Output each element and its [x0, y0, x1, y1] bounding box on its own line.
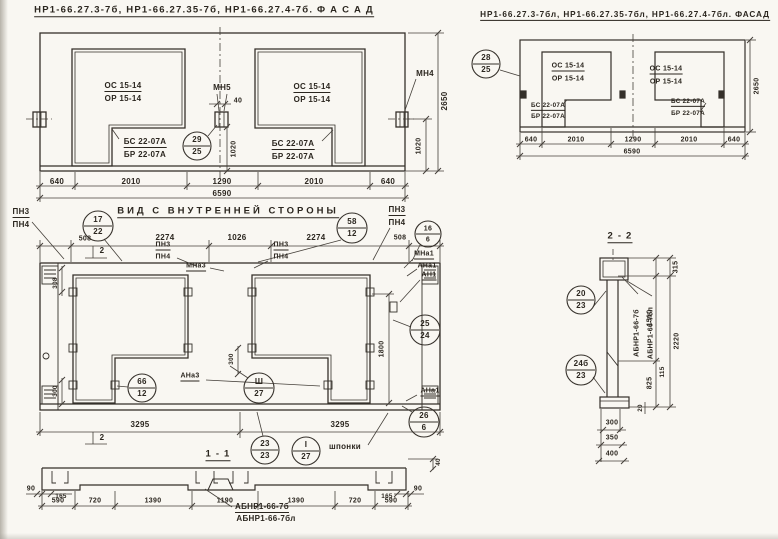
facade-right-title: НР1-66.27.3-7бл, НР1-66.27.35-7бл, НР1-6… [480, 11, 770, 21]
facade-right-block-mark: БС 22-07А [671, 99, 705, 107]
section-1-1-panel-mark: АБНР1-66-7бл [236, 515, 295, 523]
facade-right-dim: 2010 [681, 137, 698, 144]
section-1-1-dim: 40 [436, 458, 442, 466]
facade-left-dim: 1020 [416, 138, 423, 155]
section-1-1-dim: 1390 [145, 498, 162, 505]
inner-view-node-number: 16 [424, 226, 432, 233]
facade-right-dim: 2010 [568, 137, 585, 144]
inner-view-sheet-number: 23 [260, 452, 270, 460]
section-2-2-sheet-number: 23 [576, 372, 586, 380]
facade-right-dim: 640 [525, 137, 538, 144]
inner-view-node-number: 58 [347, 218, 357, 226]
labels-layer: НР1-66.27.3-7б, НР1-66.27.35-7б, НР1-66.… [0, 0, 778, 539]
inner-view-loop-mark: ПН3 [156, 242, 171, 251]
facade-left-window-mark: ОР 15-14 [105, 95, 142, 103]
inner-view-dim: 3295 [131, 421, 150, 429]
section-2-2-node-number: 24б [574, 360, 589, 368]
inner-view-node-number: 25 [420, 320, 430, 328]
facade-left-window-mark: ОР 15-14 [294, 96, 331, 104]
inner-view-note: шпонки [329, 443, 361, 451]
inner-view-section-mark: 2 [100, 434, 105, 442]
section-1-1-dim: 1190 [217, 498, 233, 505]
inner-view-sheet-number: 12 [137, 390, 147, 398]
section-1-1-dim: 720 [349, 498, 362, 505]
blueprint-sheet: НР1-66.27.3-7б, НР1-66.27.35-7б, НР1-66.… [0, 0, 778, 539]
inner-view-sheet-number: 22 [93, 228, 103, 236]
section-1-1-dim: 590 [385, 498, 398, 505]
facade-left-dim: 2650 [441, 92, 449, 111]
inner-view-title: ВИД С ВНУТРЕННЕЙ СТОРОНЫ [117, 206, 339, 218]
facade-left-dim: 2010 [305, 178, 324, 186]
inner-view-loop-mark: ПН3 [389, 206, 406, 216]
facade-right-block-mark: БС 22-07А [531, 103, 565, 111]
inner-view-loop-mark: ПН4 [389, 219, 406, 227]
facade-right-window-mark: ОС 15-14 [552, 63, 585, 72]
inner-view-node-number: I [305, 441, 308, 449]
section-1-1-dim: 590 [52, 498, 65, 505]
inner-view-dim: 3295 [331, 421, 350, 429]
inner-view-dim: 2274 [307, 234, 326, 242]
section-1-1-panel-mark: АБНР1-66-7б [235, 503, 289, 513]
facade-left-anchor-mark: МН5 [213, 84, 231, 92]
inner-view-anchor-mark: АНа3 [180, 373, 199, 382]
section-2-2-dim: 315 [673, 261, 680, 274]
inner-view-anchor-mark: АНа1 [420, 388, 439, 397]
inner-view-loop-mark: ПН4 [274, 254, 289, 261]
inner-view-dim: 300 [229, 353, 235, 364]
inner-view-anchor-mark: МНа3 [186, 263, 206, 272]
facade-left-dim: 1020 [231, 141, 238, 158]
facade-right-window-mark: ОР 15-14 [650, 79, 682, 86]
inner-view-node-number: Ш [255, 378, 263, 386]
inner-view-anchor-mark: АН1 [422, 272, 437, 281]
facade-right-window-mark: ОР 15-14 [552, 76, 584, 83]
section-2-2-dim: 20 [638, 404, 644, 412]
facade-left-block-mark: БС 22-07А [124, 138, 167, 148]
facade-right-dim: 2650 [754, 78, 761, 95]
section-2-2-dim: 300 [606, 420, 619, 427]
section-2-2-dim: 115 [660, 366, 666, 377]
inner-view-node-number: 23 [260, 440, 270, 448]
inner-view-anchor-mark: АНа1 [417, 263, 436, 270]
inner-view-dim: 508 [79, 236, 92, 243]
inner-view-dim: 300 [53, 385, 59, 396]
inner-view-sheet-number: 27 [254, 390, 264, 398]
facade-left-dim-total: 6590 [213, 190, 232, 198]
facade-right-dim: 640 [728, 137, 741, 144]
facade-left-dim: 2010 [122, 178, 141, 186]
inner-view-loop-mark: ПН3 [13, 208, 30, 218]
inner-view-loop-mark: ПН4 [156, 254, 171, 261]
inner-view-sheet-number: 24 [420, 332, 430, 340]
inner-view-loop-mark: ПН4 [13, 221, 30, 229]
inner-view-sheet-number: 27 [301, 453, 311, 461]
facade-right-window-mark: ОС 15-14 [650, 66, 683, 75]
facade-left-window-mark: ОС 15-14 [293, 83, 330, 93]
section-2-2-panel-mark: АБНР1-66-7б [634, 309, 641, 357]
section-2-2-dim: 400 [606, 451, 619, 458]
facade-right-sheet-number: 25 [481, 66, 491, 74]
section-1-1-dim: 720 [89, 498, 102, 505]
inner-view-sheet-number: 6 [426, 237, 430, 244]
section-1-1-dim: 1390 [288, 498, 305, 505]
facade-left-node-number: 29 [192, 136, 202, 144]
section-2-2-dim: 825 [647, 377, 654, 390]
facade-left-block-mark: БС 22-07А [272, 140, 315, 150]
inner-view-sheet-number: 6 [422, 424, 427, 432]
facade-left-dim: 40 [234, 98, 242, 105]
inner-view-sheet-number: 12 [347, 230, 357, 238]
facade-right-block-mark: БР 22-07А [671, 111, 705, 117]
inner-view-node-number: 26 [419, 412, 429, 420]
section-2-2-sheet-number: 23 [576, 302, 586, 310]
facade-left-dim: 640 [50, 178, 64, 186]
section-2-2-dim: 350 [606, 435, 619, 442]
facade-right-dim: 1290 [625, 137, 642, 144]
facade-right-node-number: 28 [481, 54, 491, 62]
facade-left-sheet-number: 25 [192, 148, 202, 156]
section-2-2-dim: 2220 [674, 333, 681, 350]
facade-left-window-mark: ОС 15-14 [104, 82, 141, 92]
facade-left-title: НР1-66.27.3-7б, НР1-66.27.35-7б, НР1-66.… [34, 5, 374, 17]
inner-view-node-number: 17 [93, 216, 103, 224]
section-2-2-dim: 1510 [647, 310, 654, 327]
facade-right-block-mark: БР 22-07А [531, 114, 565, 120]
facade-left-block-mark: БР 22-07А [272, 153, 314, 161]
inner-view-section-mark: 2 [100, 247, 105, 255]
section-2-2-node-number: 20 [576, 290, 586, 298]
section-1-1-dim: 90 [414, 486, 422, 493]
inner-view-loop-mark: ПН3 [274, 242, 289, 251]
facade-right-dim-total: 6590 [624, 149, 641, 156]
facade-left-anchor-mark: МН4 [416, 70, 434, 78]
section-2-2-title: 2 - 2 [607, 231, 632, 243]
section-1-1-title: 1 - 1 [205, 449, 230, 461]
facade-left-block-mark: БР 22-07А [124, 151, 166, 159]
inner-view-dim: 1026 [228, 234, 247, 242]
inner-view-dim: 508 [394, 235, 407, 242]
inner-view-node-number: 66 [137, 378, 147, 386]
inner-view-anchor-mark: МНа1 [414, 251, 434, 260]
facade-left-dim: 640 [381, 178, 395, 186]
section-1-1-dim: 90 [27, 486, 35, 493]
inner-view-dim: 1800 [379, 341, 386, 358]
facade-left-dim: 1290 [213, 178, 232, 186]
inner-view-dim: 308 [53, 277, 59, 288]
